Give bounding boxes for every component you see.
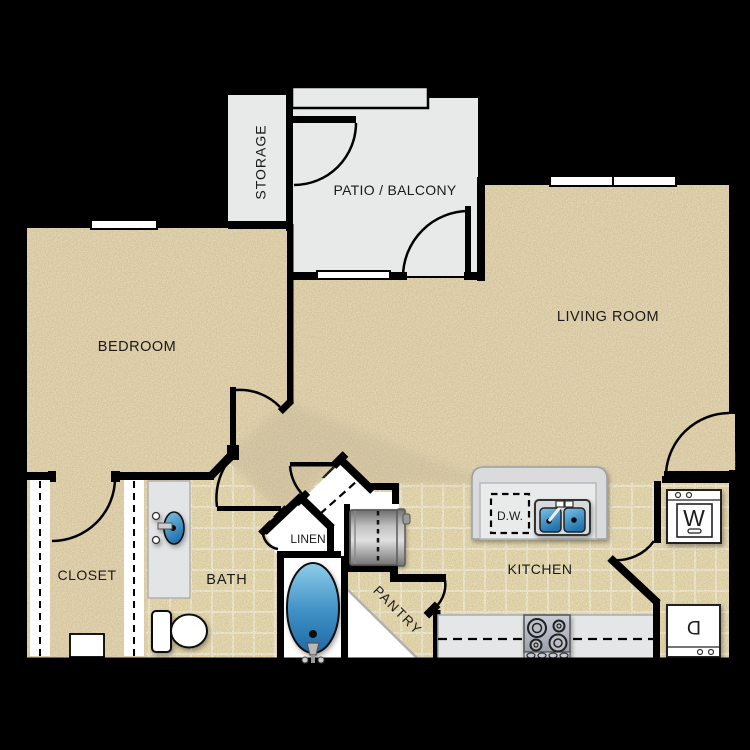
svg-text:D.W.: D.W. — [497, 509, 523, 523]
svg-text:LIVING ROOM: LIVING ROOM — [557, 309, 659, 325]
svg-text:STORAGE: STORAGE — [253, 124, 269, 199]
svg-text:BATH: BATH — [206, 572, 248, 588]
svg-text:BEDROOM: BEDROOM — [98, 339, 176, 355]
svg-text:PATIO / BALCONY: PATIO / BALCONY — [333, 182, 456, 198]
svg-text:W: W — [683, 505, 705, 531]
svg-text:D: D — [687, 616, 701, 638]
svg-text:CLOSET: CLOSET — [57, 567, 116, 583]
svg-text:LINEN: LINEN — [290, 532, 325, 546]
svg-text:KITCHEN: KITCHEN — [508, 561, 573, 577]
